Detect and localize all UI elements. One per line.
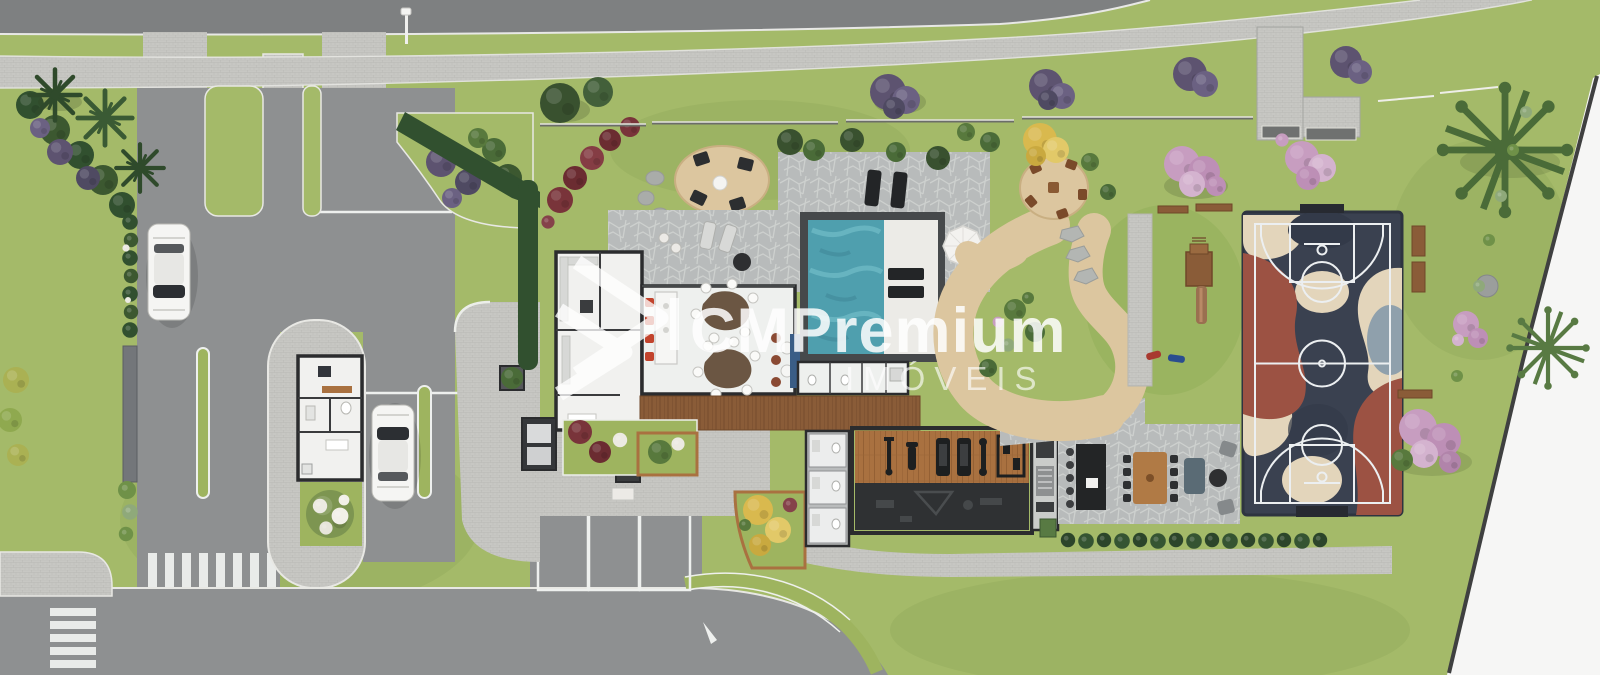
site-plan-svg: CMPremium IMÓVEIS <box>0 0 1600 675</box>
gatehouse-area <box>268 320 365 588</box>
bench <box>1398 390 1432 398</box>
bench <box>1196 204 1232 211</box>
bar-stool <box>645 352 654 361</box>
courtside-bench <box>1412 226 1425 256</box>
parked-car-1 <box>148 224 190 320</box>
pool-lounger <box>888 268 924 280</box>
utility-box <box>1040 519 1056 537</box>
hoop-structure-south <box>1296 506 1348 517</box>
site-plan-image: CMPremium IMÓVEIS <box>0 0 1600 675</box>
fitness-room <box>806 428 1058 546</box>
white-flowering-tree <box>306 490 354 538</box>
courtside-bench <box>1412 262 1425 292</box>
restrooms <box>806 431 849 546</box>
left-wall <box>123 346 137 482</box>
watermark-brand: CMPremium <box>690 296 1067 366</box>
west-hedge <box>518 180 538 370</box>
bench <box>1158 206 1188 213</box>
round-lounge-patio <box>675 146 769 214</box>
araucaria-tree-small <box>1506 306 1590 390</box>
gatehouse-building <box>298 356 362 480</box>
bottom-left-sidewalk <box>0 552 112 596</box>
parked-car-2 <box>372 405 414 501</box>
logo-divider-bar <box>670 298 679 350</box>
hoop-structure-north <box>1300 204 1344 213</box>
entry-mat <box>612 488 634 500</box>
round-picnic-patio <box>1020 157 1088 220</box>
watermark-subtitle: IMÓVEIS <box>845 360 1046 397</box>
plaza-planter-tree <box>501 367 523 389</box>
gym-storage <box>1032 430 1058 530</box>
playground-path <box>1128 214 1152 386</box>
hedge-row <box>1061 533 1327 549</box>
